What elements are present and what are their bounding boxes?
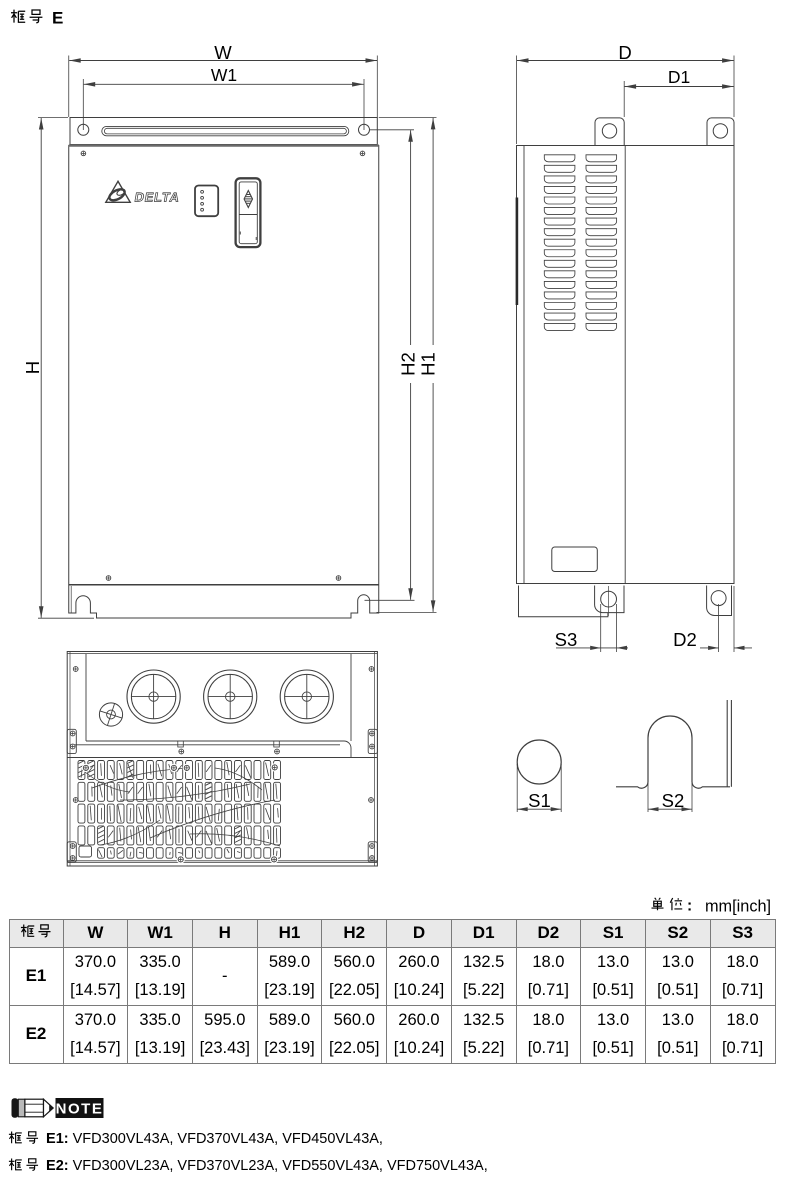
- svg-text:D2: D2: [673, 629, 697, 650]
- svg-text:mm[inch]: mm[inch]: [705, 898, 771, 916]
- svg-text:H1: H1: [418, 352, 439, 376]
- svg-text::: :: [687, 898, 692, 915]
- svg-text:W1: W1: [211, 65, 237, 85]
- svg-text:H2: H2: [398, 352, 419, 376]
- svg-text:NOTE: NOTE: [56, 1101, 104, 1118]
- svg-text:D1: D1: [668, 67, 690, 87]
- svg-text:S2: S2: [662, 790, 685, 811]
- svg-text:S3: S3: [555, 629, 578, 650]
- svg-text:W: W: [214, 42, 232, 63]
- svg-text:E: E: [52, 9, 63, 28]
- svg-text:H: H: [22, 361, 43, 374]
- svg-text:D: D: [618, 42, 631, 63]
- svg-text:DELTA: DELTA: [133, 190, 181, 205]
- svg-text:S1: S1: [528, 790, 551, 811]
